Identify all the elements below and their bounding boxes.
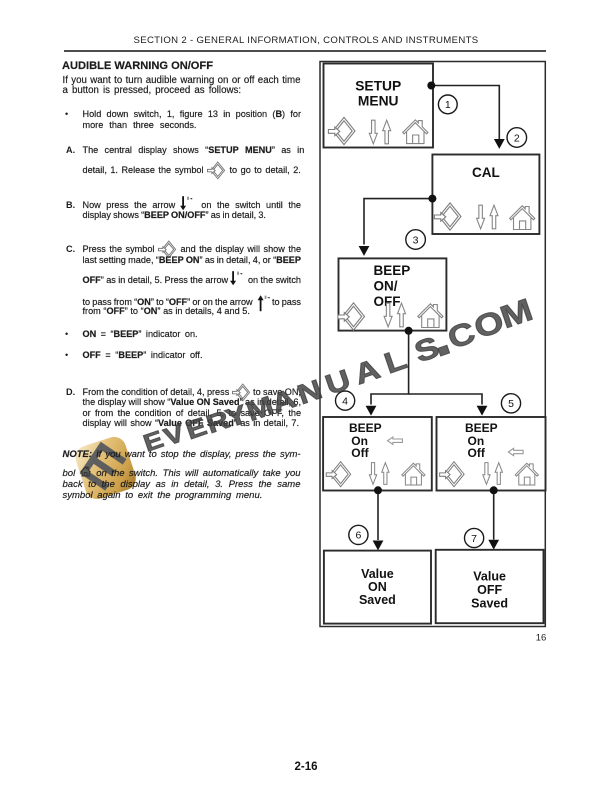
svg-text:N: N (294, 375, 326, 411)
svg-text:A: A (350, 353, 384, 391)
svg-text:U: U (321, 363, 354, 401)
svg-text:L: L (380, 342, 411, 380)
